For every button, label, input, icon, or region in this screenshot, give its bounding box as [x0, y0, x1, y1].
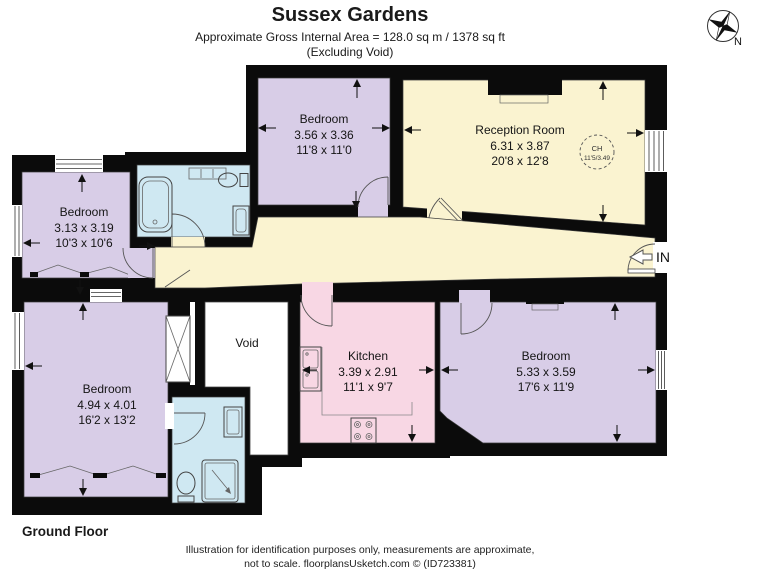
room-metric: 4.94 x 4.01 [77, 398, 136, 412]
room-name: Reception Room [475, 123, 564, 137]
room-shape-bathroom-top [137, 165, 250, 247]
room-name: Bedroom [522, 349, 571, 363]
floor-name: Ground Floor [22, 524, 108, 539]
floorplan-page: Sussex Gardens Approximate Gross Interna… [0, 0, 768, 576]
footer-line-1: Illustration for identification purposes… [0, 543, 720, 557]
entrance-in-label: IN [656, 249, 670, 265]
wardrobe [166, 316, 190, 382]
room-name: Kitchen [348, 349, 388, 363]
footer-line-2: not to scale. floorplansUsketch.com © (I… [0, 557, 720, 571]
room-metric: 5.33 x 3.59 [516, 365, 575, 379]
room-name: Void [235, 336, 258, 350]
room-imperial: 20'8 x 12'8 [491, 154, 548, 168]
room-label-void: Void [235, 336, 258, 352]
floor-plan-drawing [0, 0, 768, 576]
room-name: Bedroom [300, 112, 349, 126]
room-imperial: 17'6 x 11'9 [518, 380, 574, 394]
room-label-reception: Reception Room 6.31 x 3.87 20'8 x 12'8 [475, 123, 564, 170]
room-name: Bedroom [60, 205, 109, 219]
room-metric: 6.31 x 3.87 [490, 139, 549, 153]
room-label-bedroom-bottom-right: Bedroom 5.33 x 3.59 17'6 x 11'9 [516, 349, 575, 396]
room-name: Bedroom [83, 382, 132, 396]
room-label-kitchen: Kitchen 3.39 x 2.91 11'1 x 9'7 [338, 349, 397, 396]
ceiling-height-label: CH 11'5/3.49 [584, 144, 610, 163]
room-imperial: 11'8 x 11'0 [296, 143, 352, 157]
room-shape-bathroom-bottom [165, 397, 245, 503]
room-metric: 3.39 x 2.91 [338, 365, 397, 379]
room-imperial: 11'1 x 9'7 [343, 380, 393, 394]
room-metric: 3.56 x 3.36 [294, 128, 353, 142]
room-label-bedroom-top: Bedroom 3.56 x 3.36 11'8 x 11'0 [294, 112, 353, 159]
room-imperial: 16'2 x 13'2 [78, 413, 135, 427]
compass-north-label: N [734, 36, 742, 48]
room-label-bedroom-left: Bedroom 3.13 x 3.19 10'3 x 10'6 [54, 205, 113, 252]
room-label-bedroom-bottom-left: Bedroom 4.94 x 4.01 16'2 x 13'2 [77, 382, 136, 429]
room-metric: 3.13 x 3.19 [54, 221, 113, 235]
room-imperial: 10'3 x 10'6 [55, 236, 112, 250]
